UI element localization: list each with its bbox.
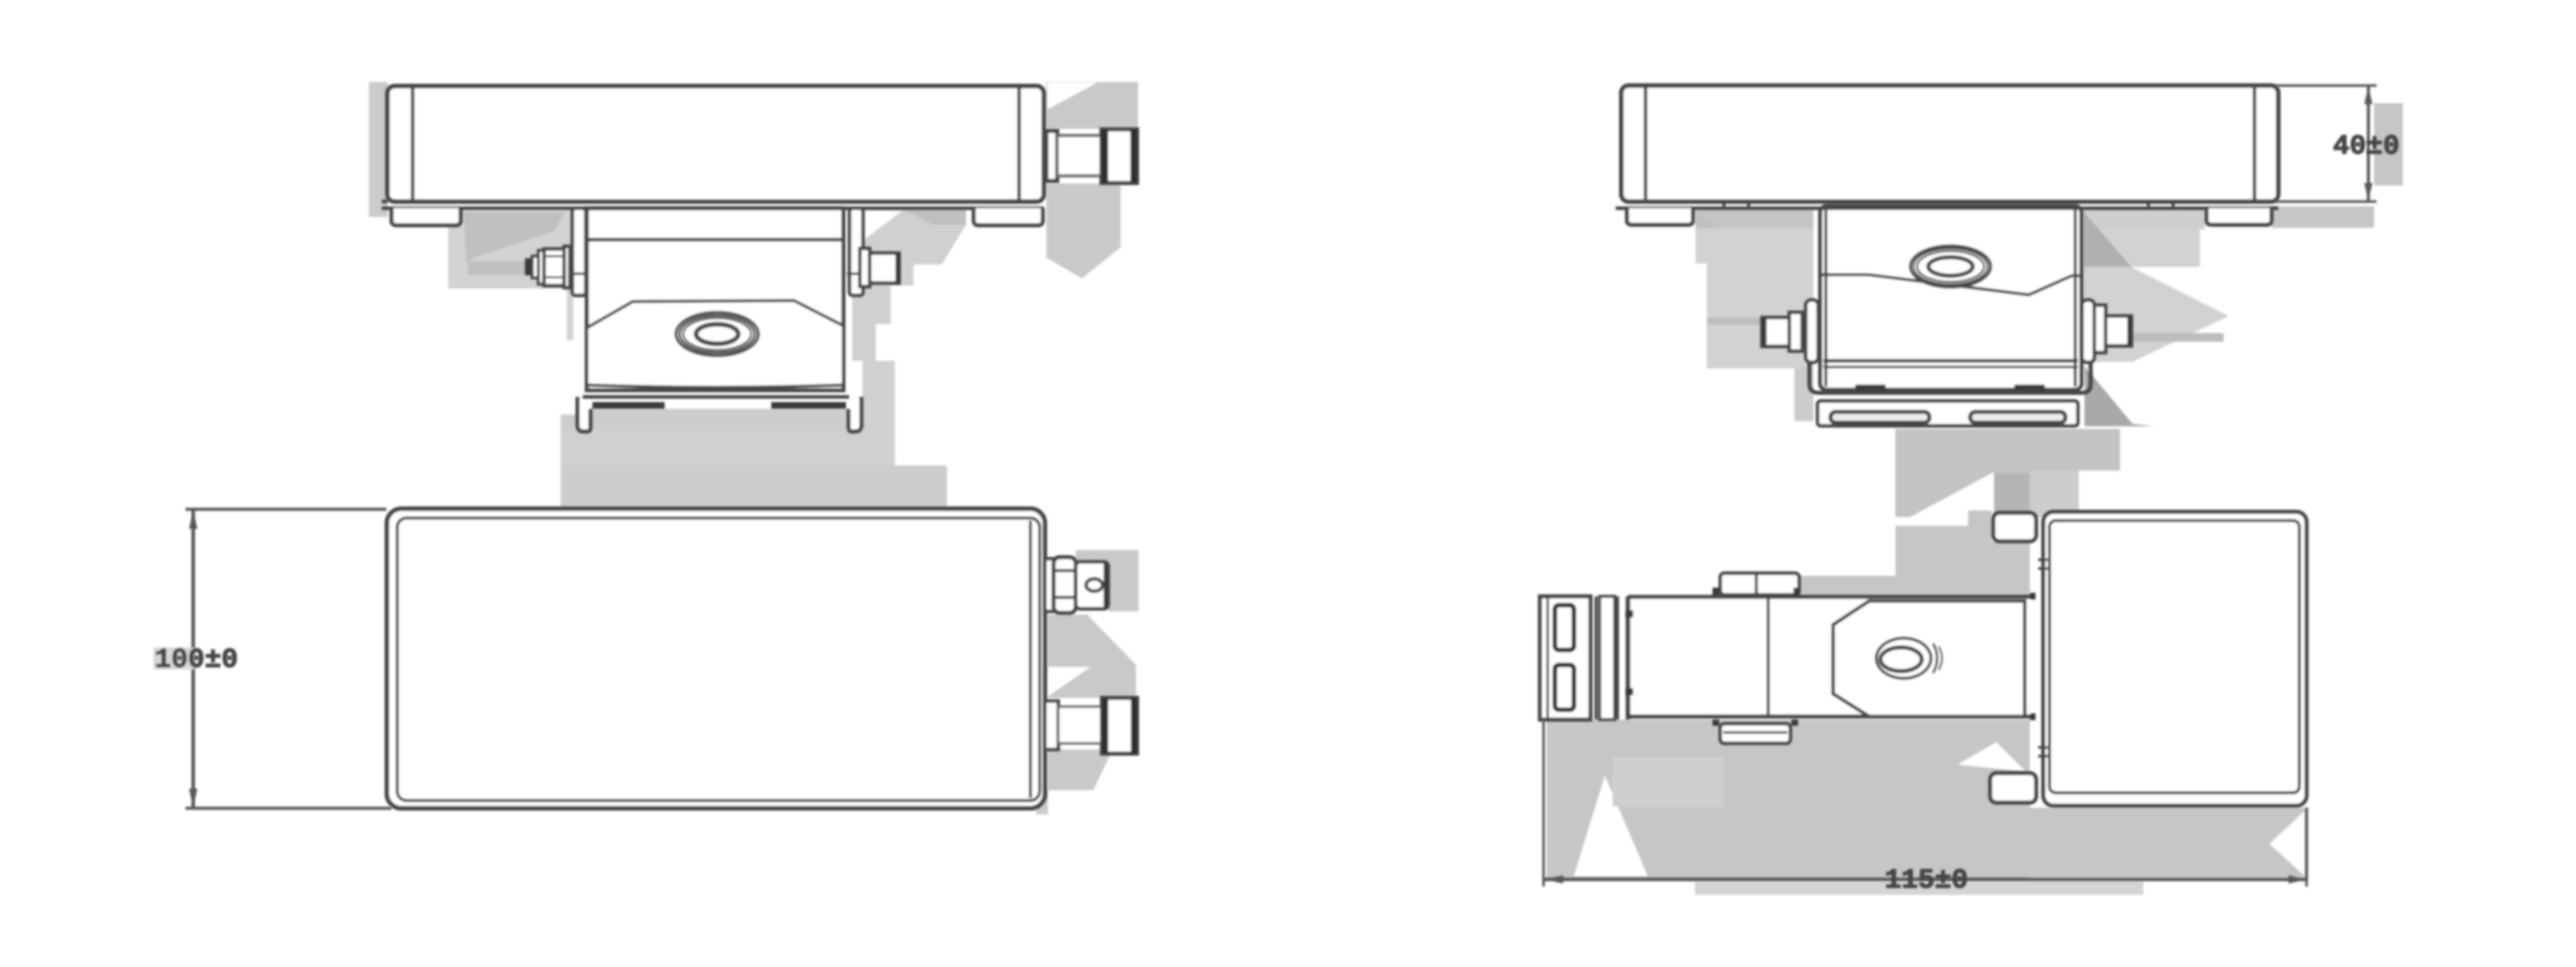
svg-text:40±0: 40±0 [2333, 131, 2400, 162]
svg-text:100±0: 100±0 [155, 644, 238, 676]
svg-text:115±0: 115±0 [1885, 865, 1968, 896]
